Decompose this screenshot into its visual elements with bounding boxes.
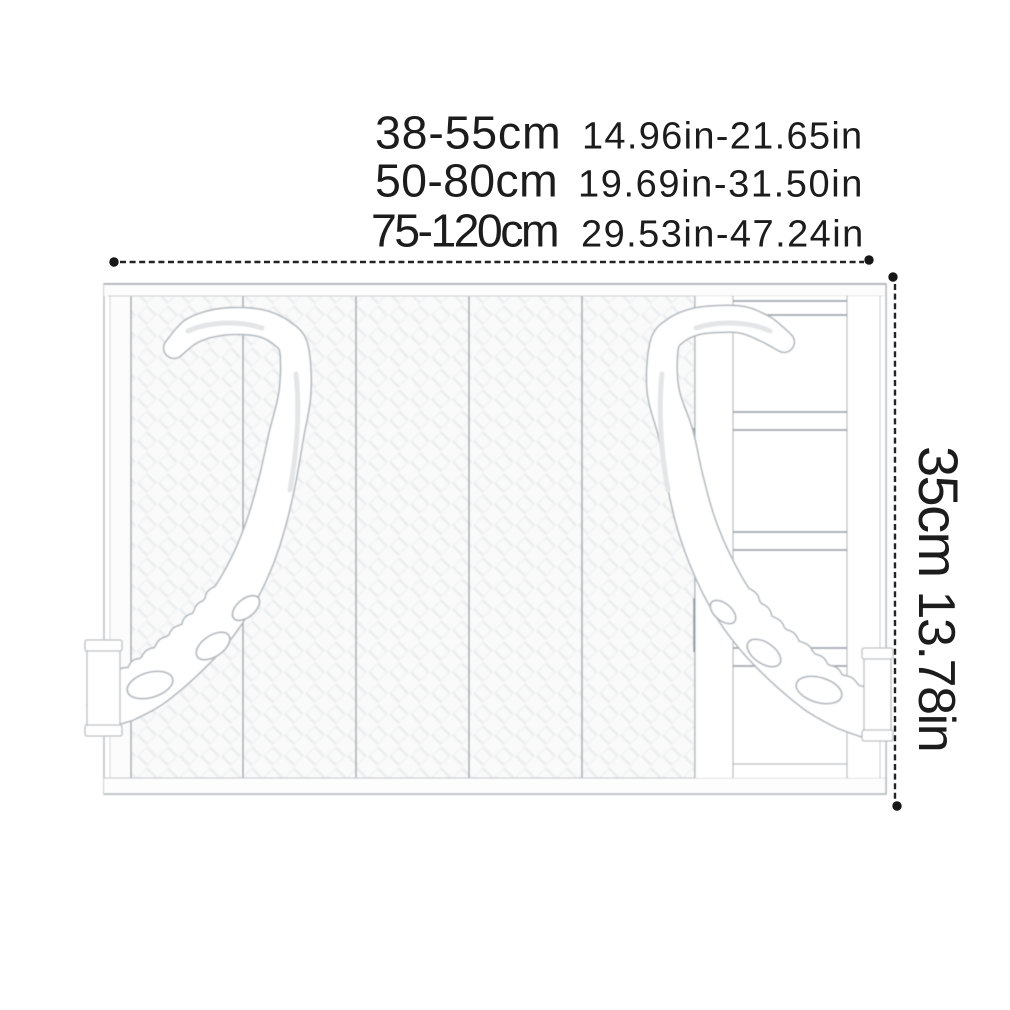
svg-text:29.53in-47.24in: 29.53in-47.24in xyxy=(581,214,865,256)
svg-text:19.69in-31.50in: 19.69in-31.50in xyxy=(578,164,864,206)
svg-text:38-55cm: 38-55cm xyxy=(375,107,562,159)
svg-text:14.96in-21.65in: 14.96in-21.65in xyxy=(582,116,864,158)
svg-text:35cm 13.78in: 35cm 13.78in xyxy=(907,446,970,751)
svg-text:75-120cm: 75-120cm xyxy=(371,205,557,257)
svg-text:50-80cm: 50-80cm xyxy=(375,155,558,207)
